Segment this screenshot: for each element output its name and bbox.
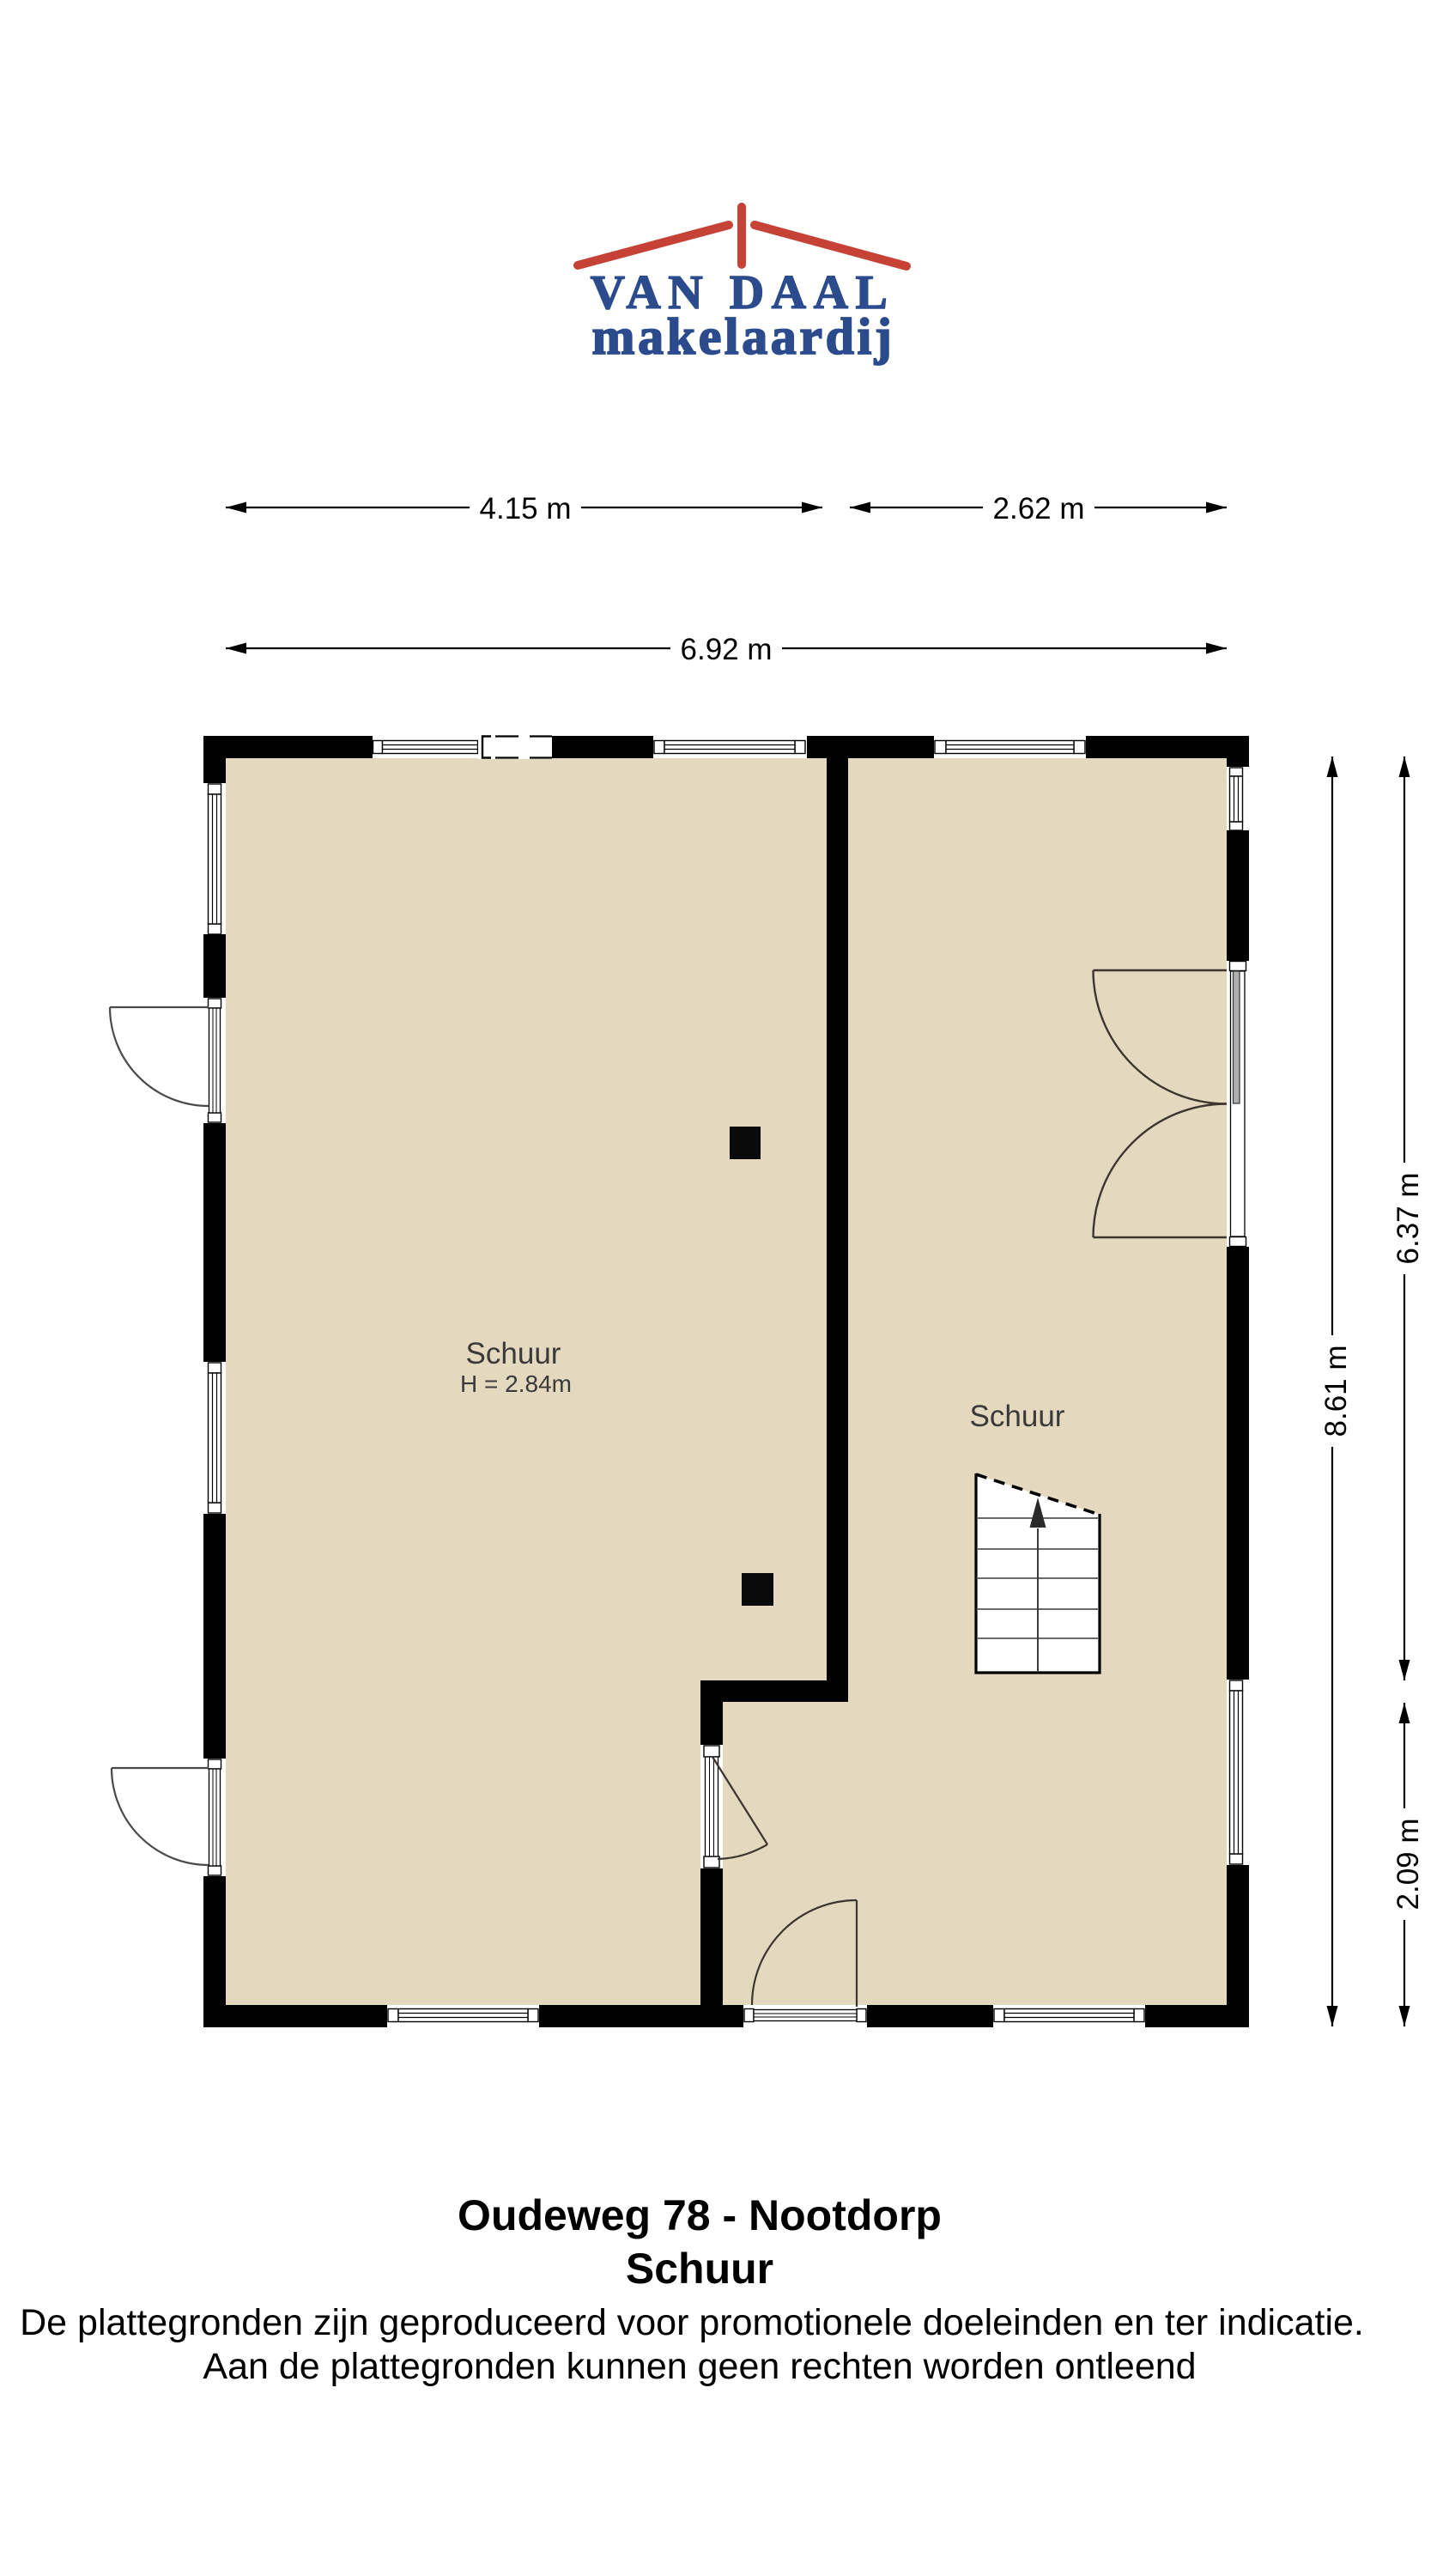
svg-text:H = 2.84m: H = 2.84m [460,1370,572,1397]
svg-text:Aan de plattegronden kunnen ge: Aan de plattegronden kunnen geen rechten… [203,2346,1196,2387]
svg-text:De plattegronden zijn geproduc: De plattegronden zijn geproduceerd voor … [20,2302,1364,2343]
svg-text:6.37 m: 6.37 m [1391,1173,1425,1265]
svg-text:4.15 m: 4.15 m [480,492,572,526]
svg-text:Oudeweg 78 - Nootdorp: Oudeweg 78 - Nootdorp [458,2191,942,2239]
svg-text:makelaardij: makelaardij [592,308,895,365]
svg-text:6.92 m: 6.92 m [681,633,773,666]
svg-text:Schuur: Schuur [466,1337,561,1370]
svg-text:8.61 m: 8.61 m [1319,1346,1353,1437]
svg-text:Schuur: Schuur [626,2245,773,2293]
svg-text:Schuur: Schuur [970,1400,1065,1433]
svg-text:2.62 m: 2.62 m [993,492,1085,526]
svg-text:2.09 m: 2.09 m [1391,1819,1425,1911]
